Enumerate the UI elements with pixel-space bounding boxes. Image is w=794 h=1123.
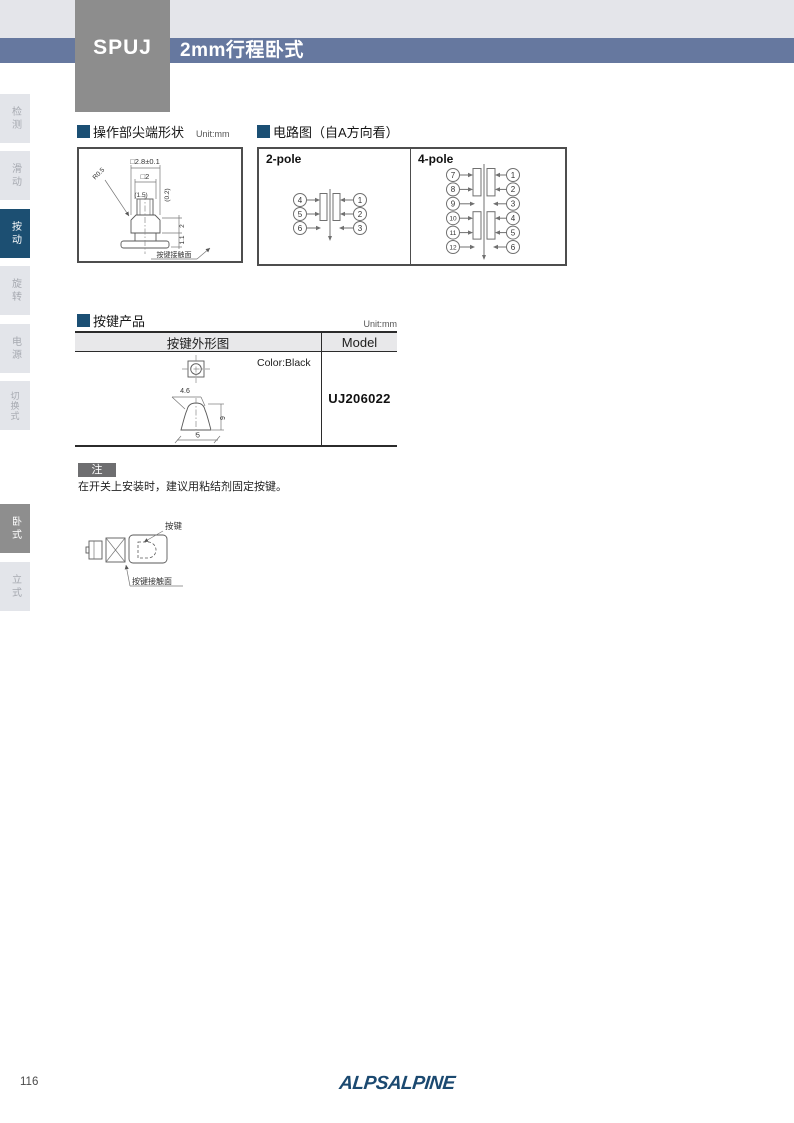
contact-face-label: 按键接触面 <box>157 250 192 259</box>
sidebar-item-label: 检测 <box>8 106 23 132</box>
page-number: 116 <box>20 1076 38 1088</box>
four-pole-diagram: 789101112123456 <box>411 149 563 264</box>
svg-text:11: 11 <box>450 230 457 237</box>
svg-text:6: 6 <box>511 243 516 252</box>
sidebar-item-power[interactable]: 电源 <box>0 324 30 373</box>
circuit-diagram-box: 2-pole 4-pole 456123 789101112123456 <box>257 147 567 266</box>
keytop-outline-header: 按键外形图 <box>75 333 322 351</box>
keytop-table-header: 按键外形图 Model <box>75 333 397 352</box>
section-title-text: 按键产品 <box>93 311 145 330</box>
sidebar-item-rotate[interactable]: 旋转 <box>0 266 30 315</box>
keytop-outline-cell: Color:Black 4.6 <box>75 352 322 445</box>
svg-text:9: 9 <box>451 200 456 209</box>
dim-radius: R0.5 <box>92 166 107 181</box>
svg-text:5: 5 <box>511 228 516 237</box>
section-bullet-icon <box>257 125 270 138</box>
model-number: UJ206022 <box>328 391 390 406</box>
tip-shape-unit: Unit:mm <box>196 129 230 139</box>
series-name: SPUJ <box>75 36 170 60</box>
sidebar-item-label: 卧式 <box>8 516 23 542</box>
tip-shape-drawing-box: □2.8±0.1 □2 (1.5) (0.2) R0.5 <box>77 147 243 263</box>
svg-text:3: 3 <box>511 200 516 209</box>
svg-text:7: 7 <box>451 171 456 180</box>
dim-outer: □2.8±0.1 <box>130 157 160 166</box>
keytop-section-title: 按键产品 <box>77 311 145 330</box>
note-badge: 注 <box>78 463 116 477</box>
sidebar-item-label: 按动 <box>8 221 23 247</box>
dim-top-width: 4.6 <box>180 388 190 395</box>
sidebar-item-label: 切换式 <box>9 391 22 421</box>
circuit-section-title: 电路图（自A方向看） <box>257 122 399 141</box>
section-title-text: 操作部尖端形状 <box>93 122 184 141</box>
note-text: 在开关上安装时，建议用粘结剂固定按键。 <box>78 478 287 494</box>
brand-logo: ALPSALPINE <box>333 1073 461 1095</box>
sidebar-item-vertical[interactable]: 立式 <box>0 562 30 611</box>
section-bullet-icon <box>77 314 90 327</box>
sidebar-item-detect[interactable]: 检测 <box>0 94 30 143</box>
dim-bottom-width: 5 <box>196 433 200 440</box>
svg-text:6: 6 <box>298 224 303 233</box>
tip-shape-drawing: □2.8±0.1 □2 (1.5) (0.2) R0.5 <box>79 149 241 261</box>
keytop-table-row: Color:Black 4.6 <box>75 352 397 445</box>
dim-top: □2 <box>141 172 150 181</box>
svg-text:5: 5 <box>298 210 303 219</box>
svg-text:1: 1 <box>358 196 363 205</box>
svg-text:12: 12 <box>449 244 457 251</box>
series-box: SPUJ <box>75 0 170 112</box>
key-label: 按键 <box>165 521 183 531</box>
sidebar-item-label: 滑动 <box>8 163 23 189</box>
model-header: Model <box>322 333 397 351</box>
sidebar-item-label: 电源 <box>8 336 23 362</box>
dim-w15: (1.5) <box>134 192 147 199</box>
keytop-unit: Unit:mm <box>330 319 397 329</box>
catalog-page: SPUJ 2mm行程卧式 检测 滑动 按动 旋转 电源 切换式 卧式 立式 操作… <box>0 0 794 1123</box>
svg-text:2: 2 <box>511 185 516 194</box>
svg-text:4: 4 <box>511 214 516 223</box>
svg-text:3: 3 <box>358 224 363 233</box>
dim-h11: 1.1 <box>179 235 186 244</box>
dim-d02: (0.2) <box>164 188 171 201</box>
keytop-table: 按键外形图 Model Color:Black 4.6 <box>75 331 397 447</box>
key-contact-label: 按键接触面 <box>132 576 172 586</box>
tip-shape-section-title: 操作部尖端形状 <box>77 122 184 141</box>
sidebar-item-slide[interactable]: 滑动 <box>0 151 30 200</box>
sidebar-item-label: 立式 <box>8 574 23 600</box>
model-cell: UJ206022 <box>322 352 397 445</box>
dim-h2: 2 <box>179 224 186 228</box>
svg-text:1: 1 <box>511 171 516 180</box>
mounting-figure: 按键 按键接触面 <box>85 516 225 601</box>
page-title: 2mm行程卧式 <box>180 39 304 63</box>
svg-text:8: 8 <box>451 185 456 194</box>
svg-text:10: 10 <box>449 216 457 223</box>
sidebar-item-horizontal[interactable]: 卧式 <box>0 504 30 553</box>
svg-text:2: 2 <box>358 210 363 219</box>
dim-height: 9 <box>220 416 227 420</box>
two-pole-diagram: 456123 <box>259 149 410 264</box>
section-title-text: 电路图（自A方向看） <box>273 122 399 141</box>
sidebar-item-push[interactable]: 按动 <box>0 209 30 258</box>
color-note: Color:Black <box>257 357 311 369</box>
sidebar-item-label: 旋转 <box>8 278 23 304</box>
sidebar-item-toggle[interactable]: 切换式 <box>0 381 30 430</box>
svg-text:4: 4 <box>298 196 303 205</box>
section-bullet-icon <box>77 125 90 138</box>
